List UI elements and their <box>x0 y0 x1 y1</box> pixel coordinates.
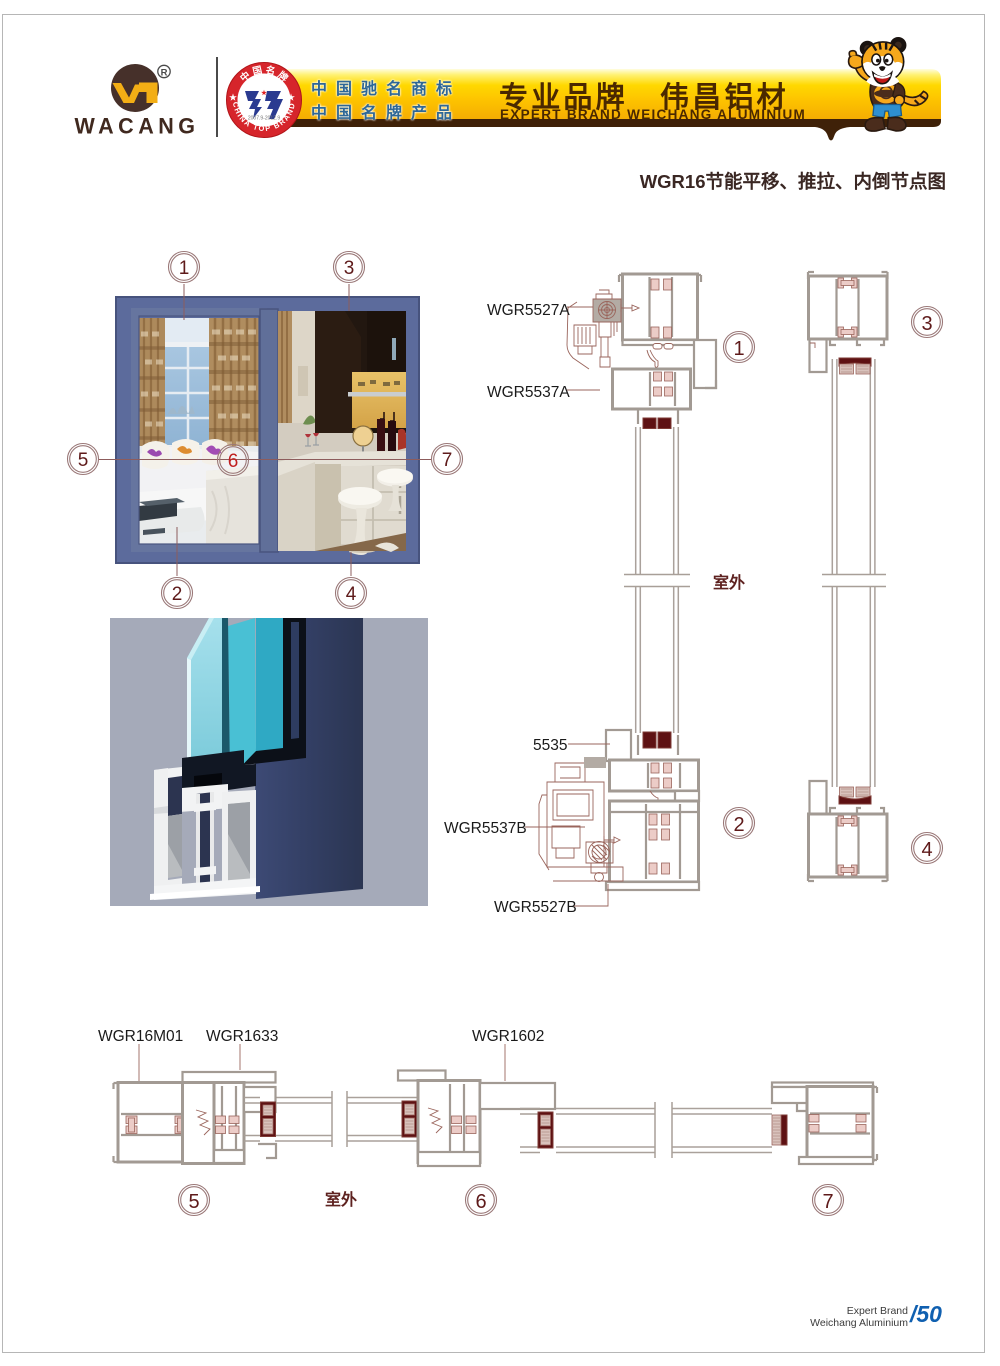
svg-text:3: 3 <box>344 258 355 279</box>
svg-text:2: 2 <box>172 584 183 605</box>
svg-text:7: 7 <box>822 1191 833 1213</box>
svg-text:1: 1 <box>733 338 744 360</box>
svg-text:1: 1 <box>179 258 190 279</box>
svg-text:WGR1602: WGR1602 <box>472 1028 544 1045</box>
svg-text:6: 6 <box>228 451 239 472</box>
svg-text:5: 5 <box>78 450 89 471</box>
svg-text:6: 6 <box>475 1191 486 1213</box>
svg-text:2007.9-2012.9: 2007.9-2012.9 <box>248 116 280 122</box>
svg-text:WGR5527A: WGR5527A <box>487 302 570 319</box>
svg-text:WGR5527B: WGR5527B <box>494 899 577 916</box>
svg-text:WGR16M01: WGR16M01 <box>98 1028 183 1045</box>
svg-text:室外: 室外 <box>325 1190 357 1209</box>
svg-text:2: 2 <box>733 814 744 836</box>
svg-text:4: 4 <box>346 584 357 605</box>
svg-text:室外: 室外 <box>713 573 745 592</box>
svg-text:WGR5537B: WGR5537B <box>444 820 527 837</box>
svg-text:WGR1633: WGR1633 <box>206 1028 278 1045</box>
svg-text:3: 3 <box>921 313 932 335</box>
svg-text:R: R <box>161 68 168 79</box>
svg-text:5535: 5535 <box>533 737 567 754</box>
svg-text:5: 5 <box>188 1191 199 1213</box>
svg-text:4: 4 <box>921 839 932 861</box>
svg-text:WGR5537A: WGR5537A <box>487 384 570 401</box>
